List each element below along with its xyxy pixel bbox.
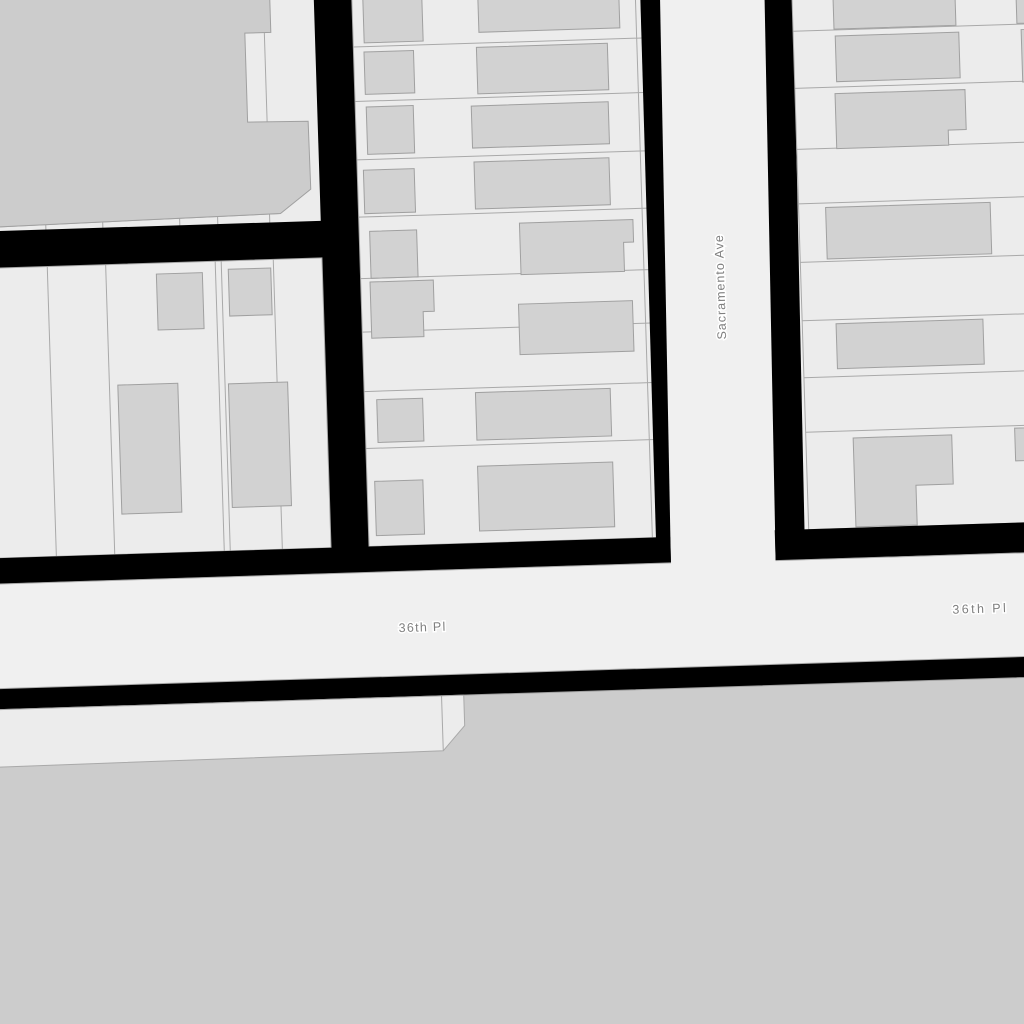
svg-text:36th Pl: 36th Pl: [952, 601, 1008, 617]
svg-text:36th Pl: 36th Pl: [398, 620, 446, 636]
